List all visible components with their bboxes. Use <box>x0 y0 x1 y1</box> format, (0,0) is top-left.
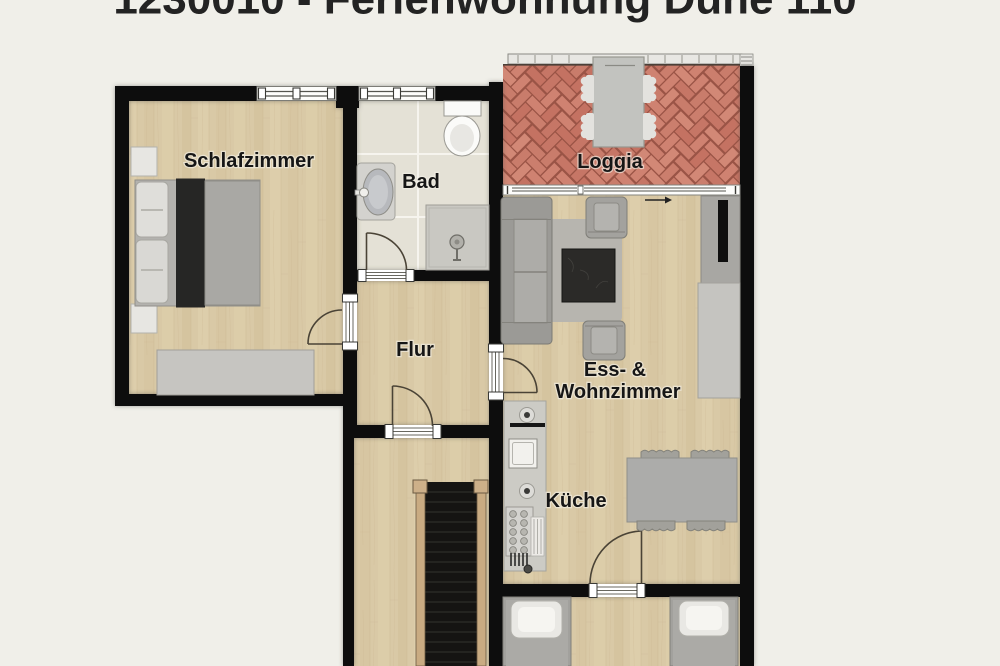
svg-text:Bad: Bad <box>402 171 440 193</box>
svg-text:Flur: Flur <box>396 339 434 361</box>
svg-text:Küche: Küche <box>545 490 606 512</box>
svg-text:1230010 - Ferienwohnung Düne 1: 1230010 - Ferienwohnung Düne 110 <box>113 0 856 24</box>
svg-text:Wohnzimmer: Wohnzimmer <box>555 381 680 403</box>
svg-text:Ess- &: Ess- & <box>584 359 646 381</box>
svg-text:Loggia: Loggia <box>577 151 643 173</box>
svg-text:Schlafzimmer: Schlafzimmer <box>184 150 314 172</box>
